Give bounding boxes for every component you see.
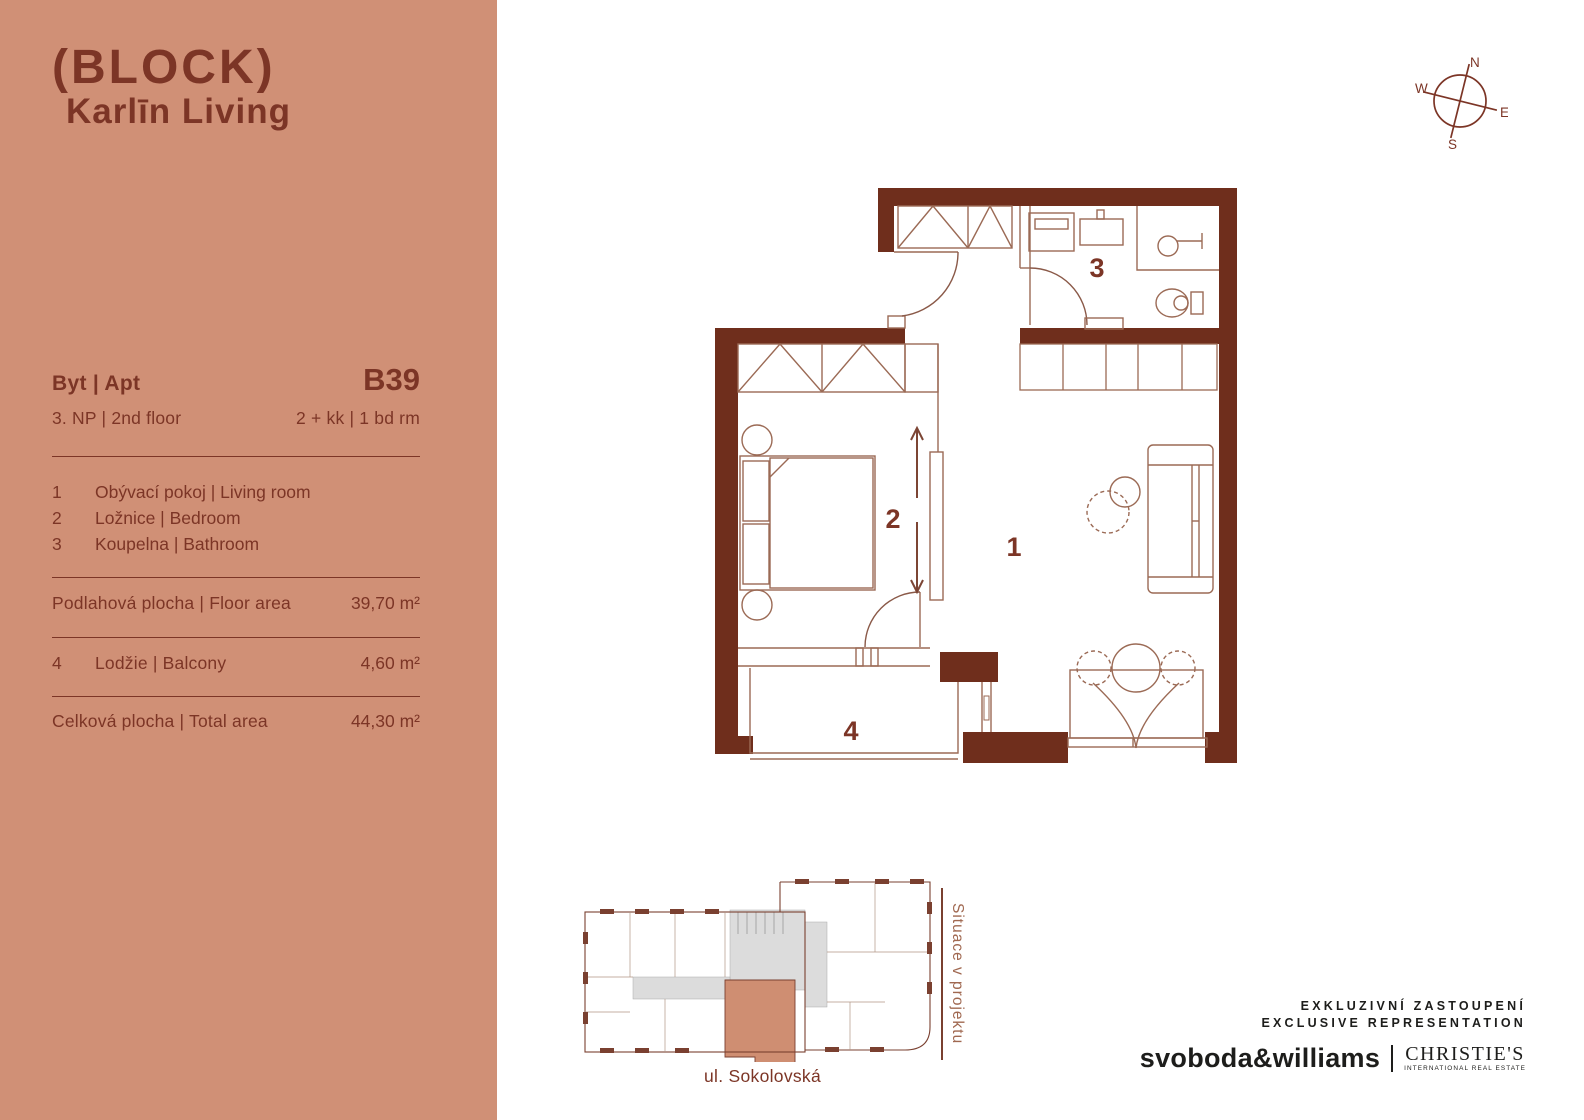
radiator-icon (1085, 318, 1123, 329)
floor-area-row: Podlahová plocha | Floor area 39,70 m² (52, 593, 420, 614)
floor-area-value: 39,70 m² (351, 593, 420, 614)
room-3-number: 3 (1089, 253, 1104, 283)
room-number: 1 (52, 482, 95, 503)
floor-area-label: Podlahová plocha | Floor area (52, 593, 291, 614)
nightstand-icon (742, 425, 772, 455)
shower-enclosure (1137, 206, 1219, 270)
representation-line-en: EXCLUSIVE REPRESENTATION (1140, 1015, 1526, 1032)
bedroom (738, 344, 938, 647)
plant-icon (1110, 477, 1140, 507)
room-label: Koupelna | Bathroom (95, 534, 259, 555)
divider (52, 696, 420, 697)
chair-icon (1077, 651, 1111, 685)
room-label: Obývací pokoj | Living room (95, 482, 311, 503)
sliding-partition (911, 344, 943, 600)
room-label: Ložnice | Bedroom (95, 508, 241, 529)
layout-label: 2 + kk | 1 bd rm (296, 408, 420, 429)
divider (52, 637, 420, 638)
total-area-row: Celková plocha | Total area 44,30 m² (52, 711, 420, 732)
compass-e: E (1500, 105, 1508, 120)
kitchen-cabinets (1020, 344, 1217, 390)
chair-icon (1161, 651, 1195, 685)
balcony-number: 4 (52, 653, 95, 674)
apartment-floor-plan: 1 2 3 4 (700, 183, 1245, 773)
highlighted-unit (725, 980, 795, 1062)
project-logo: (BLOCK) Karlīn Living (52, 44, 291, 129)
room-number: 3 (52, 534, 95, 555)
living-room (1068, 445, 1213, 748)
terrace-area (1070, 670, 1203, 738)
room-list-item: 3 Koupelna | Bathroom (52, 534, 420, 555)
divider (52, 577, 420, 578)
plant-icon (1087, 491, 1129, 533)
apartment-label: Byt | Apt (52, 372, 140, 396)
compass-n: N (1470, 55, 1480, 70)
branding-block: EXKLUZIVNÍ ZASTOUPENÍ EXCLUSIVE REPRESEN… (1140, 998, 1526, 1074)
bedroom-door-arc (865, 592, 920, 647)
entry-door-arc (902, 252, 958, 316)
entry-hall (888, 206, 1012, 328)
svoboda-williams-logo: svoboda&williams (1140, 1043, 1380, 1074)
compass-rose-icon: N W E S (1413, 55, 1508, 150)
site-plan-caption: Situace v projektu (948, 888, 966, 1060)
room-4-number: 4 (843, 716, 858, 746)
site-plan-rule (941, 888, 943, 1060)
table-icon (1112, 644, 1160, 692)
sofa-icon (1148, 445, 1213, 593)
site-plan (575, 862, 950, 1062)
nightstand-icon (742, 590, 772, 620)
shower-head-icon (1158, 236, 1178, 256)
representation-line-cz: EXKLUZIVNÍ ZASTOUPENÍ (1140, 998, 1526, 1015)
sidebar-panel: (BLOCK) Karlīn Living Byt | Apt B39 3. N… (0, 0, 497, 1120)
room-2-number: 2 (885, 504, 900, 534)
total-area-label: Celková plocha | Total area (52, 711, 268, 732)
bed-icon (740, 456, 875, 590)
logo-divider (1391, 1045, 1393, 1072)
bathroom (1020, 206, 1219, 329)
apartment-header-row: Byt | Apt B39 (52, 362, 420, 398)
balcony-row: 4 Lodžie | Balcony 4,60 m² (52, 653, 420, 674)
logo-block-wordmark: (BLOCK) (52, 44, 291, 92)
slide-direction-arrows (911, 428, 923, 592)
sink-icon (1080, 219, 1123, 245)
compass-s: S (1448, 137, 1457, 150)
christies-logo: CHRISTIE'S INTERNATIONAL REAL ESTATE (1404, 1044, 1526, 1072)
brand-logos-row: svoboda&williams CHRISTIE'S INTERNATIONA… (1140, 1043, 1526, 1074)
room-list-item: 1 Obývací pokoj | Living room (52, 482, 420, 503)
apartment-code: B39 (363, 362, 420, 398)
compass-w: W (1415, 81, 1428, 96)
divider (52, 456, 420, 457)
floor-layout-row: 3. NP | 2nd floor 2 + kk | 1 bd rm (52, 408, 420, 429)
room-number: 2 (52, 508, 95, 529)
balcony-label: Lodžie | Balcony (95, 653, 226, 674)
street-label: ul. Sokolovská (575, 1066, 950, 1087)
floor-label: 3. NP | 2nd floor (52, 408, 181, 429)
room-1-number: 1 (1006, 532, 1021, 562)
room-list-item: 2 Ložnice | Bedroom (52, 508, 420, 529)
total-area-value: 44,30 m² (351, 711, 420, 732)
logo-karlin-living: Karlīn Living (52, 94, 291, 129)
toilet-icon (1156, 289, 1188, 317)
christies-subline: INTERNATIONAL REAL ESTATE (1404, 1066, 1526, 1072)
balcony-value: 4,60 m² (361, 653, 420, 674)
bathroom-door-arc (1030, 268, 1087, 325)
christies-wordmark: CHRISTIE'S (1405, 1044, 1525, 1064)
